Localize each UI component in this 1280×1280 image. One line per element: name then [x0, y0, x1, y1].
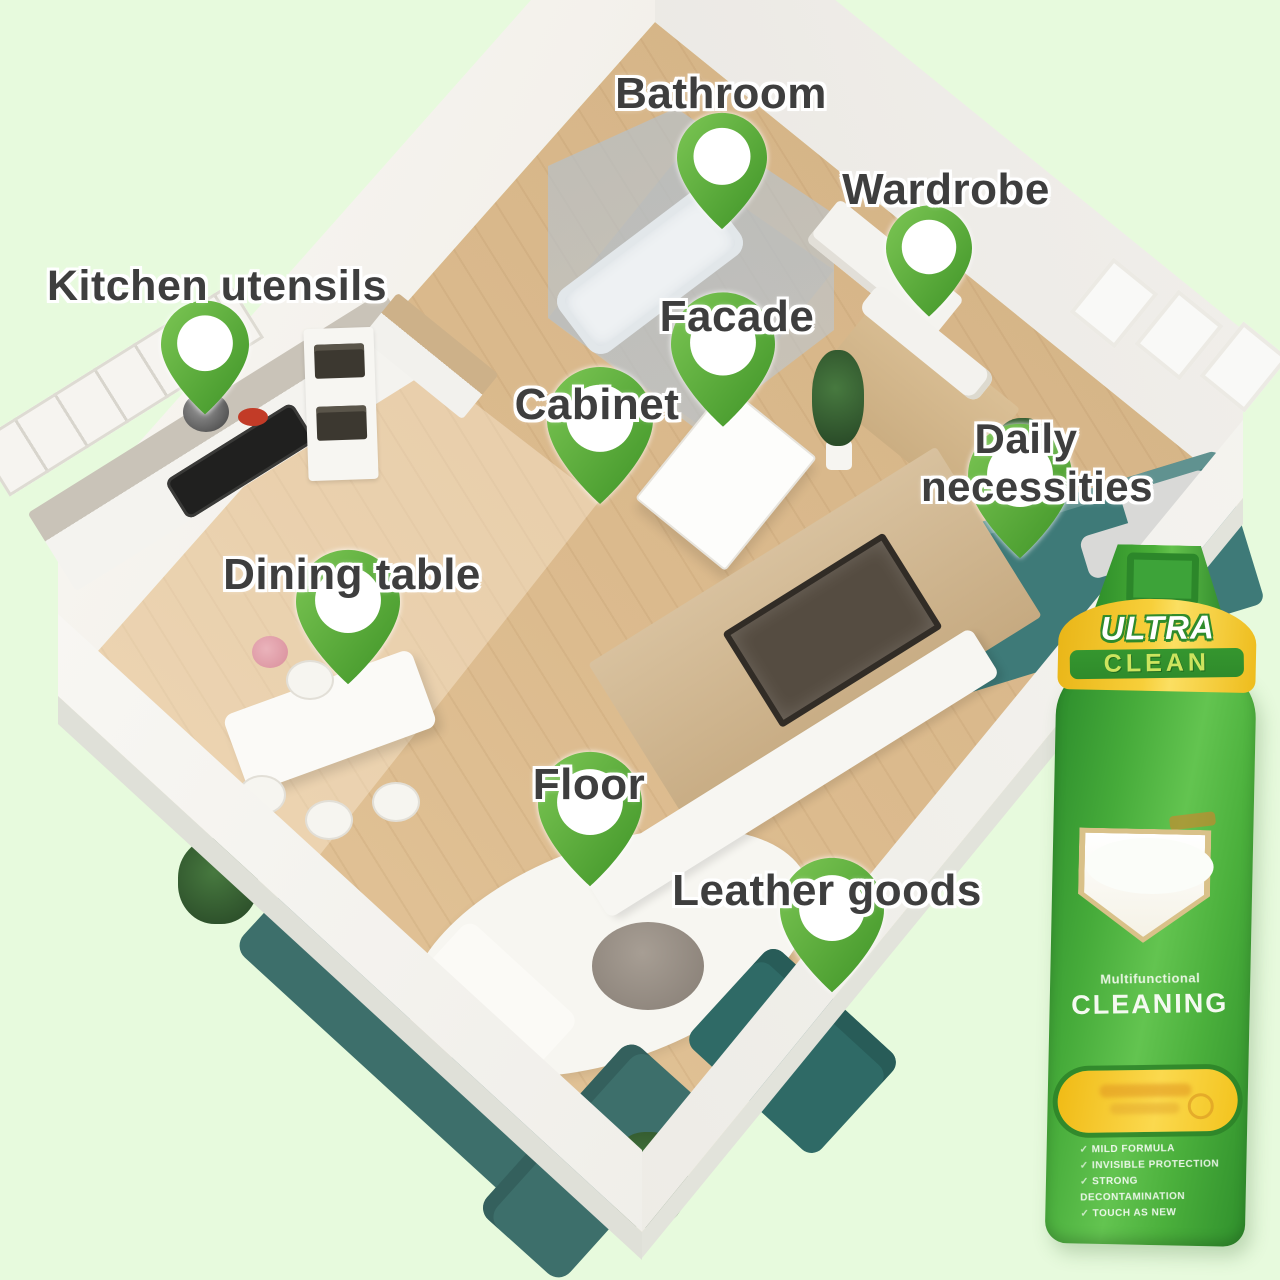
pin-label-dining-table: Dining table: [223, 553, 481, 597]
product-name: CLEANING: [1050, 988, 1250, 1022]
pin-kitchen-utensils: [161, 300, 249, 415]
feature-item: STRONG DECONTAMINATION: [1080, 1172, 1246, 1206]
pin-label-bathroom: Bathroom: [615, 72, 827, 116]
cap-flip-top: [1126, 552, 1199, 605]
label-badge: [1057, 1069, 1238, 1134]
dining-chair: [372, 782, 420, 822]
promo-image: Bathroom Wardrobe Kitchen utensils Facad…: [0, 0, 1280, 1280]
pin-label-kitchen-utensils: Kitchen utensils: [47, 265, 387, 308]
pin-label-leather-goods: Leather goods: [672, 869, 982, 913]
plant: [812, 350, 864, 446]
pin-bathroom: [677, 112, 767, 230]
oven: [314, 343, 365, 379]
feature-list: MILD FORMULA INVISIBLE PROTECTION STRONG…: [1079, 1140, 1246, 1222]
oven: [316, 405, 367, 441]
map-pin-icon: [677, 112, 767, 230]
ottoman-pouf: [592, 922, 704, 1010]
blurred-text: [1099, 1083, 1191, 1097]
feature-item: TOUCH AS NEW: [1080, 1204, 1246, 1222]
dining-chair: [305, 800, 353, 840]
brand-band: ULTRA CLEAN: [1057, 597, 1257, 693]
oven-tower: [303, 327, 378, 481]
flower-strawberry-icon: [1066, 1273, 1180, 1280]
blurred-text: [1110, 1103, 1180, 1115]
product-subtitle: Multifunctional: [1050, 970, 1250, 988]
badge-ring-icon: [1188, 1093, 1214, 1119]
flower-vase: [252, 636, 288, 668]
brand-name-bottom: CLEAN: [1070, 648, 1244, 679]
label-accent: [1169, 811, 1216, 830]
pin-label-floor: Floor: [533, 763, 645, 807]
map-pin-icon: [886, 205, 972, 317]
pin-wardrobe: [886, 205, 972, 317]
map-pin-icon: [161, 300, 249, 415]
pin-label-daily: Daily: [975, 418, 1078, 460]
pin-label-necessities: necessities: [921, 466, 1153, 508]
brand-name-top: ULTRA: [1058, 608, 1257, 649]
cleaning-product-bottle: Multifunctional CLEANING MILD FORMULA IN…: [1045, 543, 1260, 1247]
pin-label-wardrobe: Wardrobe: [842, 168, 1050, 212]
bottle-body: Multifunctional CLEANING MILD FORMULA IN…: [1045, 661, 1257, 1247]
pin-label-facade: Facade: [660, 295, 815, 339]
pin-label-cabinet: Cabinet: [515, 383, 680, 427]
